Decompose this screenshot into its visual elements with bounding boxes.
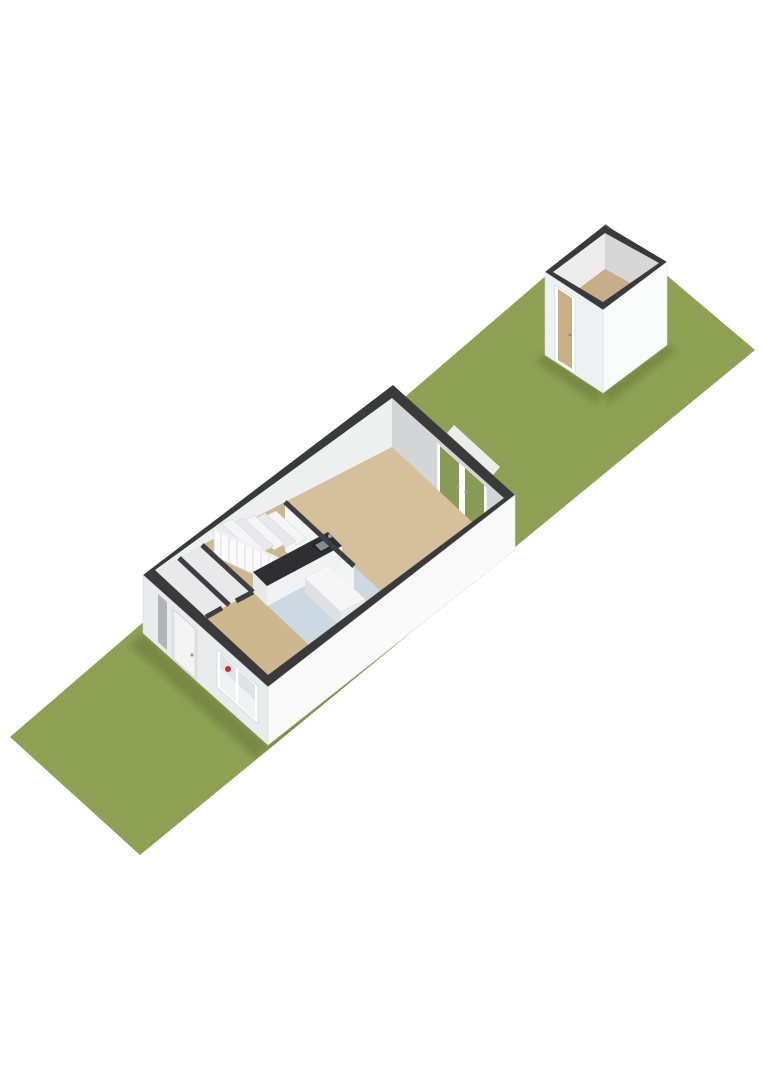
shed-door-handle xyxy=(569,334,572,337)
shed-door-panel xyxy=(558,289,572,369)
sink-faucet xyxy=(328,534,332,538)
entrance-door-handle xyxy=(190,653,193,656)
floorplan-canvas xyxy=(0,0,764,1080)
door-handle-right xyxy=(464,490,467,493)
entrance-sidelight xyxy=(158,594,167,650)
shed-door xyxy=(555,285,575,374)
floorplan-stage xyxy=(0,0,764,1080)
stove-red-accent xyxy=(225,666,231,672)
door-handle-left xyxy=(456,485,459,488)
